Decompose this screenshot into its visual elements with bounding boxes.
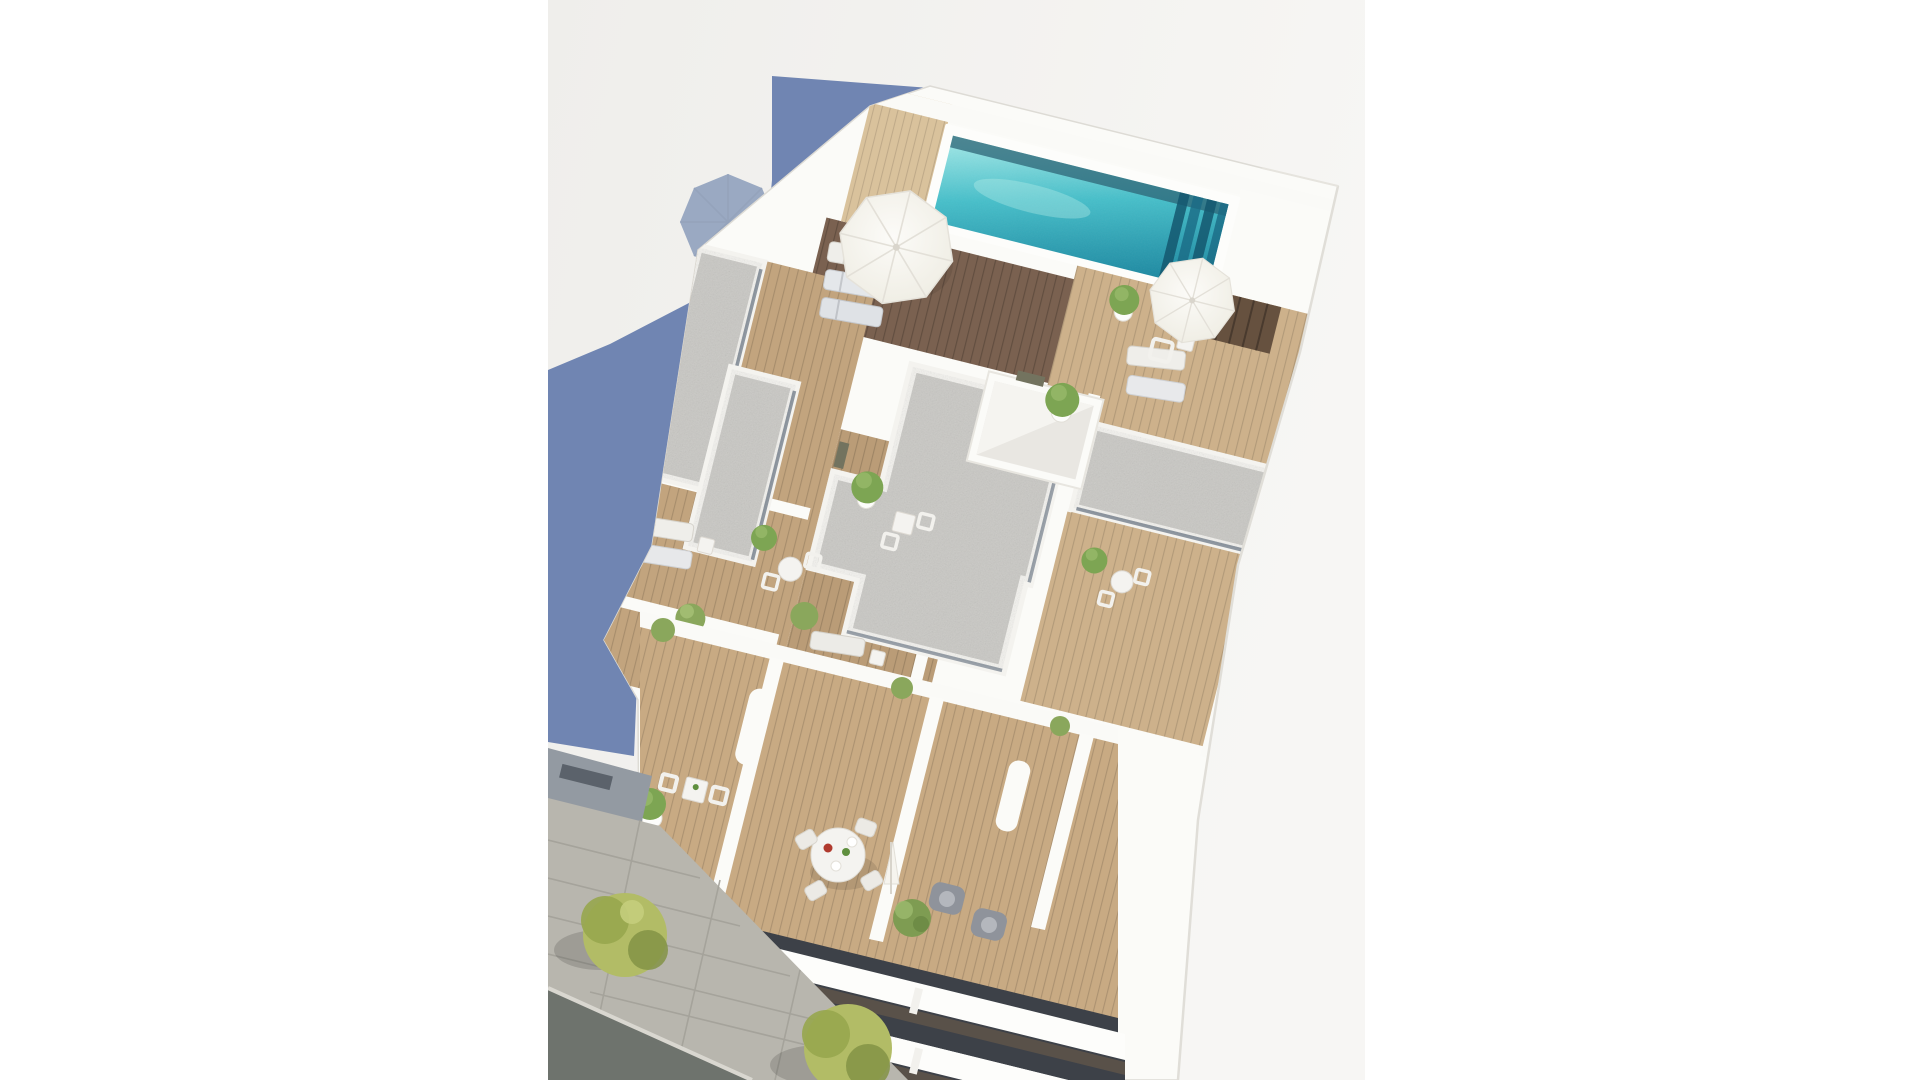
attic-leafy-plant — [893, 899, 931, 937]
parapet-bush — [651, 618, 675, 642]
parapet-bush — [891, 677, 913, 699]
parapet-bush — [1050, 716, 1070, 736]
aerial-render — [0, 0, 1920, 1080]
render-canvas — [0, 0, 1920, 1080]
